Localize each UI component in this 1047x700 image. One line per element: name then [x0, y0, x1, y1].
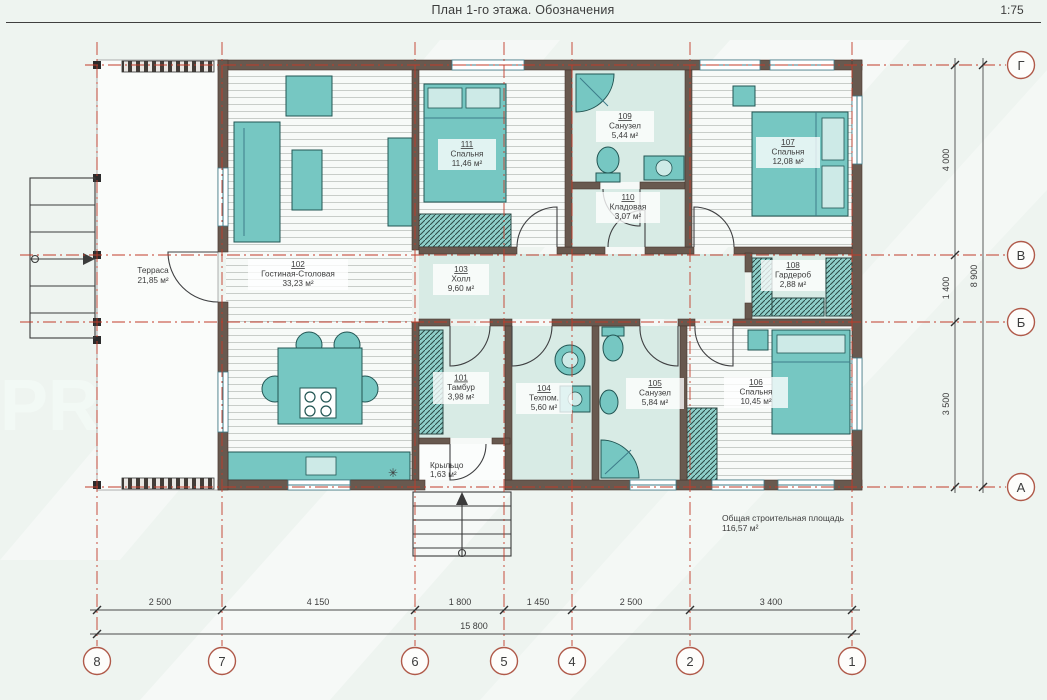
room-107-area: 12,08 м² [772, 157, 803, 166]
room-110-area: 3,07 м² [615, 212, 642, 221]
room-101-number: 101 [454, 374, 468, 383]
terrace [93, 60, 218, 490]
room-109-number: 109 [618, 112, 632, 121]
room-label-103: 103 Холл 9,60 м² [433, 264, 489, 295]
toilet-109-tank [596, 173, 620, 182]
bed-111-pillow-2 [466, 88, 500, 108]
terrace-label: Терраса 21,85 м² [137, 266, 169, 285]
room-label-102: 102 Гостиная-Столовая 33,23 м² [248, 259, 348, 290]
axis-bubble-4: 4 [559, 648, 586, 675]
bed-111-pillow-1 [428, 88, 462, 108]
room-103-name: Холл [451, 275, 471, 284]
room-101-area: 3,98 м² [448, 393, 475, 402]
window-bottom-4 [778, 480, 834, 490]
room-107-number: 107 [781, 138, 795, 147]
room-110-number: 110 [621, 193, 634, 202]
window-left-1 [218, 168, 228, 226]
room-111-number: 111 [461, 140, 474, 149]
room-label-108: 108 Гардероб 2,88 м² [761, 260, 825, 291]
dim-bottom-4: 1 450 [527, 597, 550, 607]
title-bar: План 1-го этажа. Обозначения 1:75 [6, 3, 1041, 23]
closet-108-bottom [772, 298, 824, 316]
nightstand-106 [748, 330, 768, 350]
room-111-area: 11,46 м² [452, 159, 483, 168]
room-107-name: Спальня [772, 148, 805, 157]
terrace-floor [97, 60, 218, 490]
svg-text:8: 8 [93, 654, 100, 669]
exterior-stair [30, 178, 95, 338]
nightstand-107 [733, 86, 755, 106]
svg-text:1: 1 [848, 654, 855, 669]
axis-bubble-g: Г [1008, 52, 1035, 79]
dim-right-3: 3 500 [941, 393, 951, 416]
axis-bubble-v: В [1008, 242, 1035, 269]
room-109-name: Санузел [609, 122, 641, 131]
bed-106-pillow [777, 335, 845, 353]
room-111-name: Спальня [451, 150, 484, 159]
room-label-107: 107 Спальня 12,08 м² [756, 137, 820, 168]
axis-bubble-2: 2 [677, 648, 704, 675]
svg-text:4: 4 [568, 654, 575, 669]
axis-bubble-6: 6 [402, 648, 429, 675]
svg-text:6: 6 [411, 654, 418, 669]
dim-bottom-total: 15 800 [460, 621, 488, 631]
page-title: План 1-го этажа. Обозначения [431, 3, 614, 17]
window-bottom-2 [630, 480, 676, 490]
sofa [234, 122, 280, 242]
room-label-105: 105 Санузел 5,84 м² [626, 378, 684, 409]
room-105-number: 105 [648, 379, 662, 388]
room-103-area: 9,60 м² [448, 284, 475, 293]
dim-bottom-3: 1 800 [449, 597, 472, 607]
room-105-name: Санузел [639, 389, 671, 398]
room-label-111: 111 Спальня 11,46 м² [438, 139, 496, 170]
axis-bubble-a: А [1008, 474, 1035, 501]
toilet-105 [603, 335, 623, 361]
room-105-area: 5,84 м² [642, 398, 669, 407]
room-102-number: 102 [291, 260, 305, 269]
svg-text:Б: Б [1017, 315, 1026, 330]
room-label-110: 110 Кладовая 3,07 м² [596, 192, 660, 223]
floor-plan-canvas: PRO План 1-го этажа. Обозначения 1:75 [0, 0, 1047, 700]
window-bottom-3 [712, 480, 764, 490]
kitchen-sink [306, 457, 336, 475]
total-area-label: Общая строительная площадь [722, 513, 845, 523]
room-label-101: 101 Тамбур 3,98 м² [433, 372, 489, 404]
window-right-1 [852, 96, 862, 164]
dim-right-total: 8 900 [969, 265, 979, 288]
room-102-name: Гостиная-Столовая [261, 270, 335, 279]
wardrobe-111 [419, 214, 511, 247]
axis-bubble-b: Б [1008, 309, 1035, 336]
room-104-number: 104 [537, 384, 551, 393]
fridge-symbol: ✳ [388, 466, 398, 480]
room-label-106: 106 Спальня 10,45 м² [724, 377, 788, 408]
room-101-name: Тамбур [447, 383, 475, 392]
svg-text:2: 2 [686, 654, 693, 669]
dim-bottom-6: 3 400 [760, 597, 783, 607]
coffee-table [292, 150, 322, 210]
dim-right-2: 1 400 [941, 277, 951, 300]
boiler-104-inner [562, 352, 578, 368]
svg-text:Г: Г [1017, 58, 1024, 73]
terrace-deck-top [122, 61, 214, 72]
closet-108-right [826, 258, 852, 316]
room-106-name: Спальня [740, 388, 773, 397]
svg-text:7: 7 [218, 654, 225, 669]
window-right-2 [852, 358, 862, 430]
svg-text:В: В [1017, 248, 1026, 263]
terrace-name: Терраса [137, 266, 169, 275]
dim-bottom-1: 2 500 [149, 597, 172, 607]
room-108-name: Гардероб [775, 271, 811, 280]
sideboard [388, 138, 412, 226]
porch-name: Крыльцо [430, 461, 464, 470]
axis-bubble-5: 5 [491, 648, 518, 675]
vanity-109-basin [656, 160, 672, 176]
room-109-area: 5,44 м² [612, 131, 639, 140]
bed-107-pillow-2 [822, 166, 844, 208]
window-left-2 [218, 372, 228, 432]
room-108-number: 108 [786, 261, 800, 270]
room-106-number: 106 [749, 378, 763, 387]
svg-text:5: 5 [500, 654, 507, 669]
toilet-109 [597, 147, 619, 173]
room-label-109: 109 Санузел 5,44 м² [596, 111, 654, 142]
window-bottom-1 [288, 480, 350, 490]
axis-bubble-1: 1 [839, 648, 866, 675]
wardrobe-106 [687, 408, 717, 480]
axis-bubble-7: 7 [209, 648, 236, 675]
room-104-name: Техпом. [529, 394, 559, 403]
dim-right-1: 4 000 [941, 149, 951, 172]
room-110-name: Кладовая [610, 203, 647, 212]
room-108-area: 2,88 м² [780, 280, 807, 289]
tv-stand [286, 76, 332, 116]
room-104-area: 5,60 м² [531, 403, 558, 412]
dim-bottom-5: 2 500 [620, 597, 643, 607]
bed-107-pillow-1 [822, 118, 844, 160]
drawing-scale: 1:75 [1000, 3, 1024, 17]
room-102-area: 33,23 м² [282, 279, 313, 288]
svg-text:А: А [1017, 480, 1026, 495]
axis-bubble-8: 8 [84, 648, 111, 675]
terrace-area: 21,85 м² [137, 276, 168, 285]
sink-105 [600, 390, 618, 414]
room-label-104: 104 Техпом. 5,60 м² [516, 383, 572, 414]
porch-area: 1,63 м² [430, 470, 457, 479]
room-106-area: 10,45 м² [740, 397, 771, 406]
room-103-number: 103 [454, 265, 468, 274]
dim-bottom-2: 4 150 [307, 597, 330, 607]
total-area-value: 116,57 м² [722, 523, 759, 533]
total-area-note: Общая строительная площадь 116,57 м² [722, 513, 845, 533]
